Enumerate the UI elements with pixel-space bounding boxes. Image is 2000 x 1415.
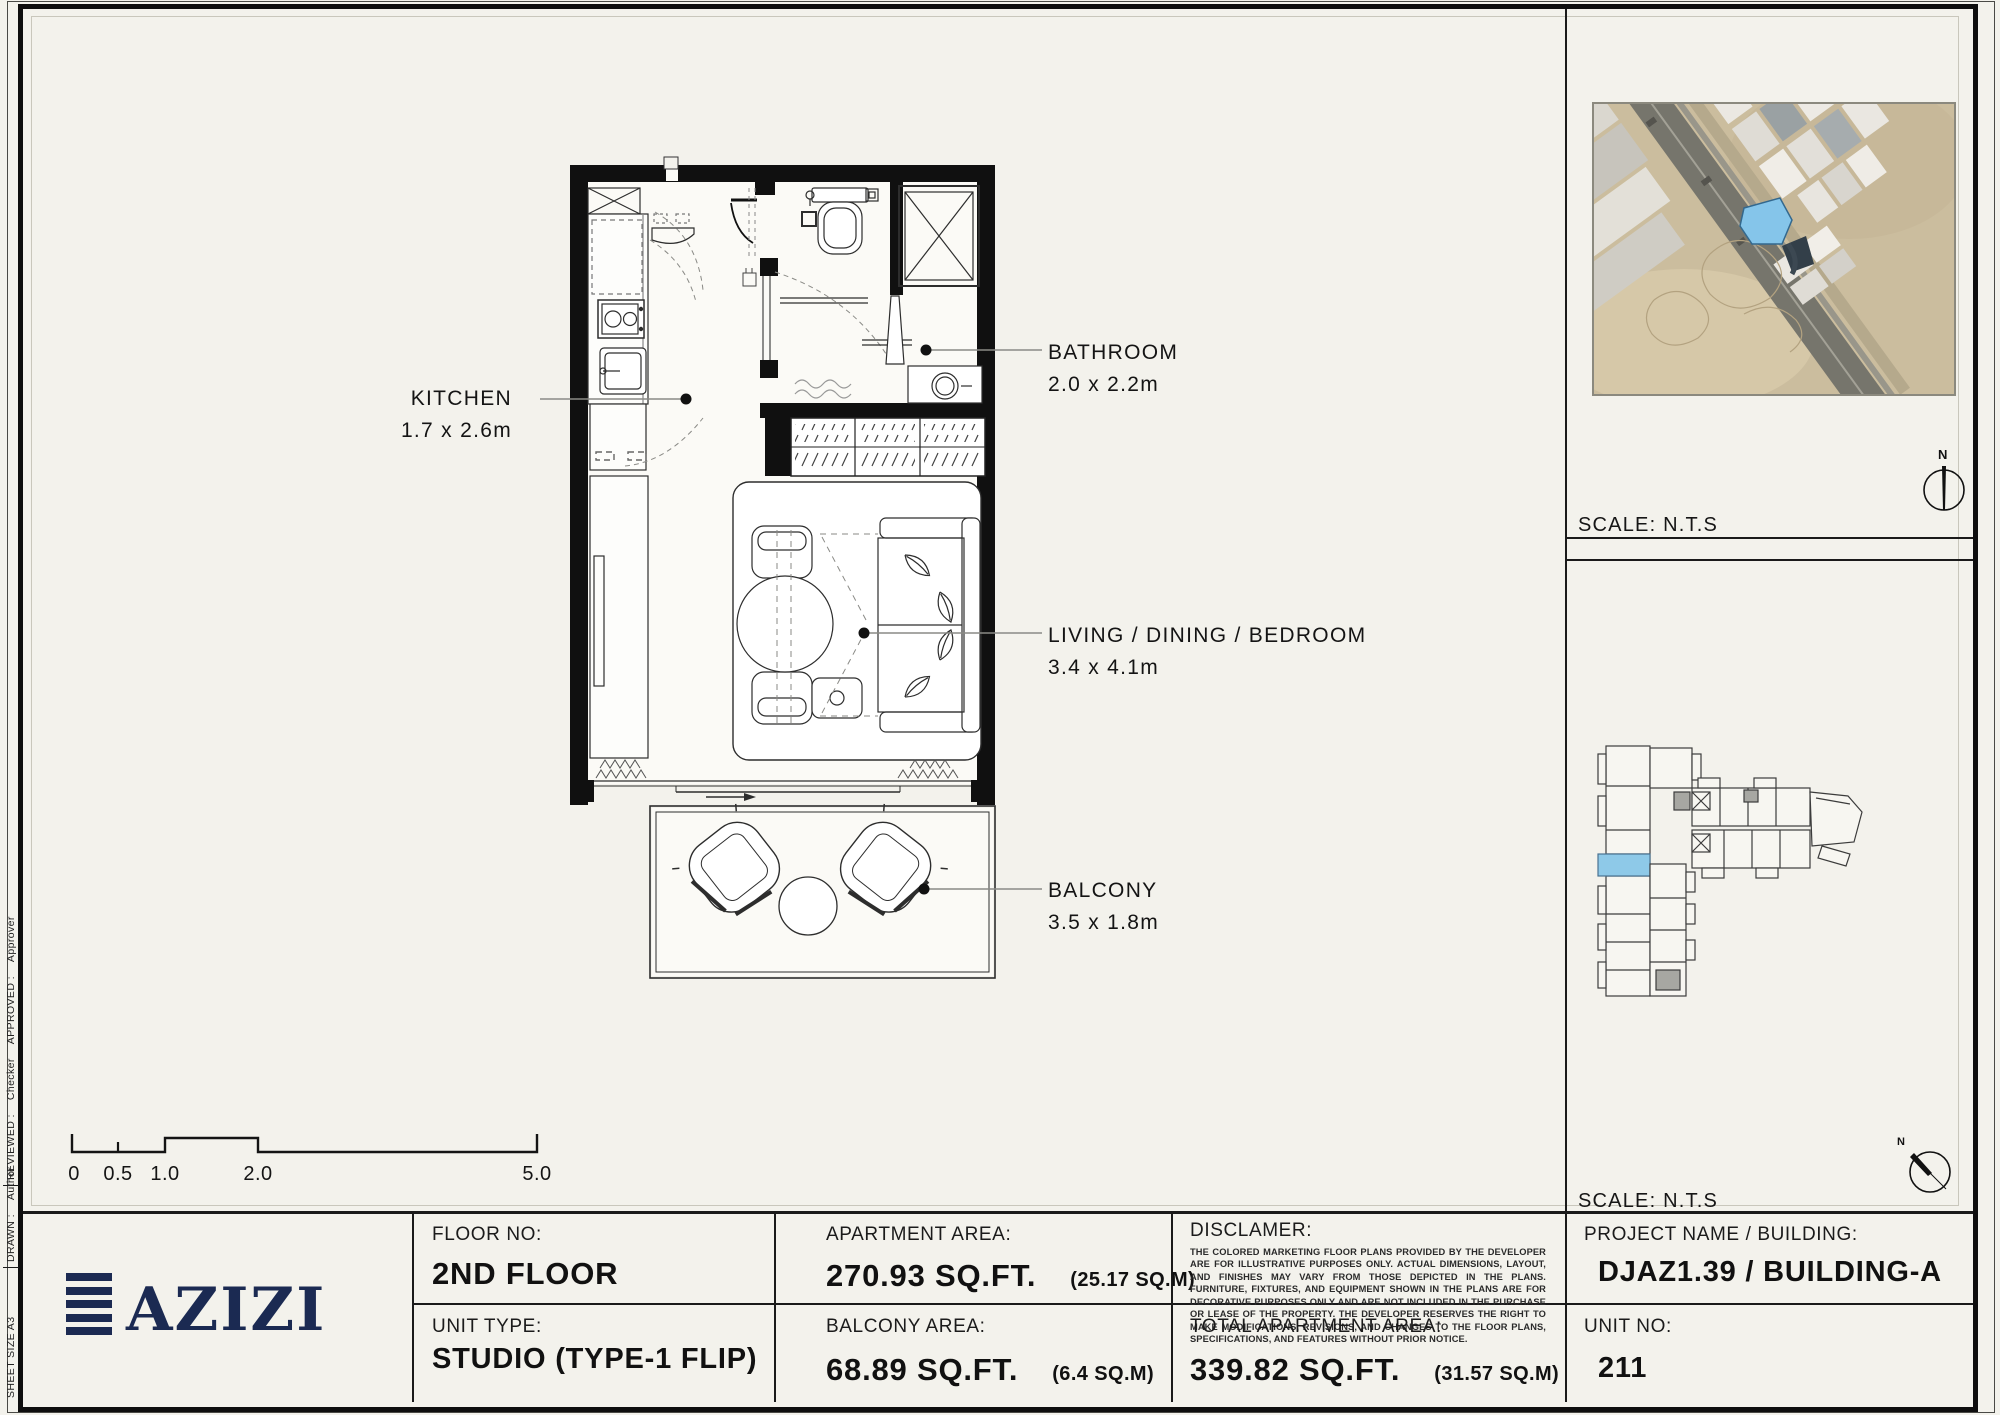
scale-tick-0: 0 <box>68 1163 80 1186</box>
north-arrow-icon <box>1905 1148 1955 1198</box>
location-map-image <box>1592 102 1956 396</box>
floor-no-value: 2ND FLOOR <box>432 1256 618 1292</box>
title-block-col-divider <box>1171 1211 1173 1402</box>
unit-type-label: UNIT TYPE: <box>432 1316 542 1338</box>
title-block-top-line <box>23 1211 1973 1214</box>
edge-strip-divider <box>3 1267 19 1268</box>
approved-value: Approver <box>5 916 17 962</box>
balcony-area-value: 68.89 SQ.FT.(6.4 SQ.M) <box>826 1352 1154 1388</box>
graphic-scale-bar <box>50 1118 570 1164</box>
total-area-imperial: 339.82 SQ.FT. <box>1190 1352 1400 1387</box>
project-name-value: DJAZ1.39 / BUILDING-A <box>1598 1256 1942 1289</box>
project-name-label: PROJECT NAME / BUILDING: <box>1584 1224 1858 1246</box>
total-area-metric: (31.57 SQ.M) <box>1434 1363 1559 1385</box>
map-scale-note: SCALE: N.T.S <box>1578 514 1718 537</box>
room-label-bathroom: BATHROOM 2.0 x 2.2m <box>1048 337 1178 400</box>
scale-tick-1: 1.0 <box>150 1163 179 1186</box>
total-area-value: 339.82 SQ.FT.(31.57 SQ.M) <box>1190 1352 1559 1388</box>
disclaimer-label: DISCLAMER: <box>1190 1220 1312 1242</box>
brand-logo: AZIZI <box>126 1280 326 1340</box>
panel-divider-top <box>1565 537 1973 539</box>
key-plan-drawing <box>1590 740 1890 1010</box>
azizi-logo-bars-icon <box>66 1273 112 1341</box>
sheet-size-vertical-text: SHEET SIZE A3 <box>5 1303 17 1398</box>
title-block-col-divider <box>412 1211 414 1402</box>
title-block-col-divider <box>774 1211 776 1402</box>
room-dims: 3.5 x 1.8m <box>1048 907 1159 939</box>
unit-no-label: UNIT NO: <box>1584 1316 1672 1338</box>
apartment-area-label: APARTMENT AREA: <box>826 1224 1011 1246</box>
apartment-area-metric: (25.17 SQ.M) <box>1070 1269 1195 1291</box>
scale-tick-2: 2.0 <box>243 1163 272 1186</box>
right-panels-divider <box>1565 9 1567 1402</box>
room-dims: 1.7 x 2.6m <box>300 415 512 447</box>
north-arrow-icon <box>1920 464 1968 512</box>
approved-label: APPROVED : <box>5 976 17 1044</box>
unit-no-value: 211 <box>1598 1352 1647 1385</box>
room-dims: 2.0 x 2.2m <box>1048 369 1178 401</box>
north-label: N <box>1897 1136 1905 1148</box>
scale-tick-05: 0.5 <box>103 1163 132 1186</box>
north-label: N <box>1938 447 1947 462</box>
balcony-area-imperial: 68.89 SQ.FT. <box>826 1352 1018 1387</box>
door-closer-icon <box>664 157 678 169</box>
room-name: KITCHEN <box>300 383 512 415</box>
apartment-area-imperial: 270.93 SQ.FT. <box>826 1258 1036 1293</box>
balcony-area-label: BALCONY AREA: <box>826 1316 986 1338</box>
apartment-area-value: 270.93 SQ.FT.(25.17 SQ.M) <box>826 1258 1195 1294</box>
reviewed-value: Checker <box>5 1058 17 1100</box>
balcony-area-metric: (6.4 SQ.M) <box>1052 1363 1154 1385</box>
floor-no-label: FLOOR NO: <box>432 1224 542 1246</box>
door-jamb-notch <box>666 168 678 181</box>
room-name: LIVING / DINING / BEDROOM <box>1048 620 1366 652</box>
drawn-label: DRAWN : <box>5 1214 17 1262</box>
sheet-size: SHEET SIZE A3 <box>5 1317 17 1398</box>
reviewed-label: REVIEWED : <box>5 1114 17 1180</box>
total-area-label: TOTAL APARTMENT AREA: <box>1190 1316 1442 1338</box>
wardrobe <box>791 418 985 476</box>
room-name: BALCONY <box>1048 875 1159 907</box>
floor-plan-sheet: SHEET SIZE A3 DRAWN :Author REVIEWED :Ch… <box>0 0 2000 1415</box>
unit-type-value: STUDIO (TYPE-1 FLIP) <box>432 1343 757 1376</box>
floor-plan-drawing <box>540 150 1060 1000</box>
room-dims: 3.4 x 4.1m <box>1048 652 1366 684</box>
room-label-living-dining-bedroom: LIVING / DINING / BEDROOM 3.4 x 4.1m <box>1048 620 1366 683</box>
room-label-balcony: BALCONY 3.5 x 1.8m <box>1048 875 1159 938</box>
room-name: BATHROOM <box>1048 337 1178 369</box>
room-label-kitchen: KITCHEN 1.7 x 2.6m <box>300 383 512 446</box>
key-plan-scale-note: SCALE: N.T.S <box>1578 1190 1718 1213</box>
reviewed-approved-vertical-text: REVIEWED :CheckerAPPROVED :Approver <box>5 902 17 1180</box>
key-plan-unit-highlight <box>1598 854 1650 876</box>
panel-divider-bottom <box>1565 559 1973 561</box>
scale-tick-5: 5.0 <box>522 1163 551 1186</box>
